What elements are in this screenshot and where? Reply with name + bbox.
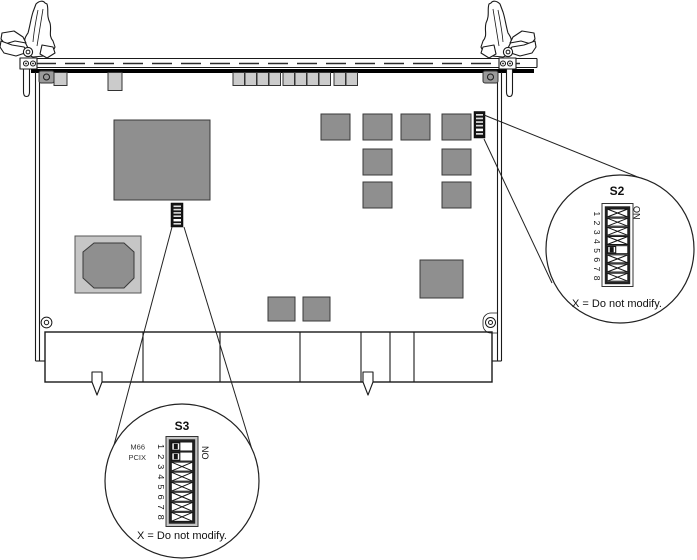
s3-note: X = Do not modify. <box>137 530 227 542</box>
front-panel <box>28 59 537 72</box>
board-figure: S2 1 2 3 4 5 6 7 8 ON X = Do not modify.… <box>0 0 697 560</box>
backplane-connector-strip <box>45 332 492 395</box>
ic-chip <box>363 149 392 175</box>
panel-connector-tabs <box>54 73 358 91</box>
mounting-hole-right <box>483 313 497 333</box>
cpu-chip <box>75 236 141 293</box>
ic-chip <box>363 114 392 140</box>
s3-label-pcix: PCIX <box>128 453 146 462</box>
ic-chip <box>363 182 392 208</box>
cpci-board-diagram: S2 1 2 3 4 5 6 7 8 ON X = Do not modify.… <box>0 0 697 560</box>
dip-switch-s2-board <box>474 112 485 139</box>
s2-on-label: ON <box>632 206 642 220</box>
s2-position-numbers: 1 2 3 4 5 6 7 8 <box>592 212 601 282</box>
corner-block-left <box>39 71 54 83</box>
keying-peg-left <box>92 372 102 395</box>
ic-chip <box>420 260 463 298</box>
board-components <box>75 114 471 321</box>
s3-on-label: ON <box>201 446 211 460</box>
callout-s3: S3 1 2 3 4 5 6 7 8 ON M66 PCIX X = Do no… <box>105 404 259 558</box>
s2-note: X = Do not modify. <box>572 298 662 310</box>
s2-title: S2 <box>610 184 625 198</box>
s3-position-numbers: 1 2 3 4 5 6 7 8 <box>156 444 165 521</box>
ic-chip <box>303 297 330 321</box>
ic-chip <box>268 297 295 321</box>
ic-chip <box>321 114 350 140</box>
ic-chip <box>401 114 430 140</box>
dip-switch-s3-board <box>171 203 183 227</box>
ic-chip-large <box>114 120 210 200</box>
ic-chip <box>442 149 471 175</box>
s3-label-m66: M66 <box>130 443 145 452</box>
mounting-hole-left <box>41 317 52 328</box>
ic-chip <box>442 114 471 140</box>
corner-block-right <box>483 71 498 83</box>
keying-peg-right <box>363 372 373 395</box>
ic-chip <box>442 182 471 208</box>
s3-title: S3 <box>175 419 190 433</box>
callout-s2: S2 1 2 3 4 5 6 7 8 ON X = Do not modify. <box>546 175 694 323</box>
